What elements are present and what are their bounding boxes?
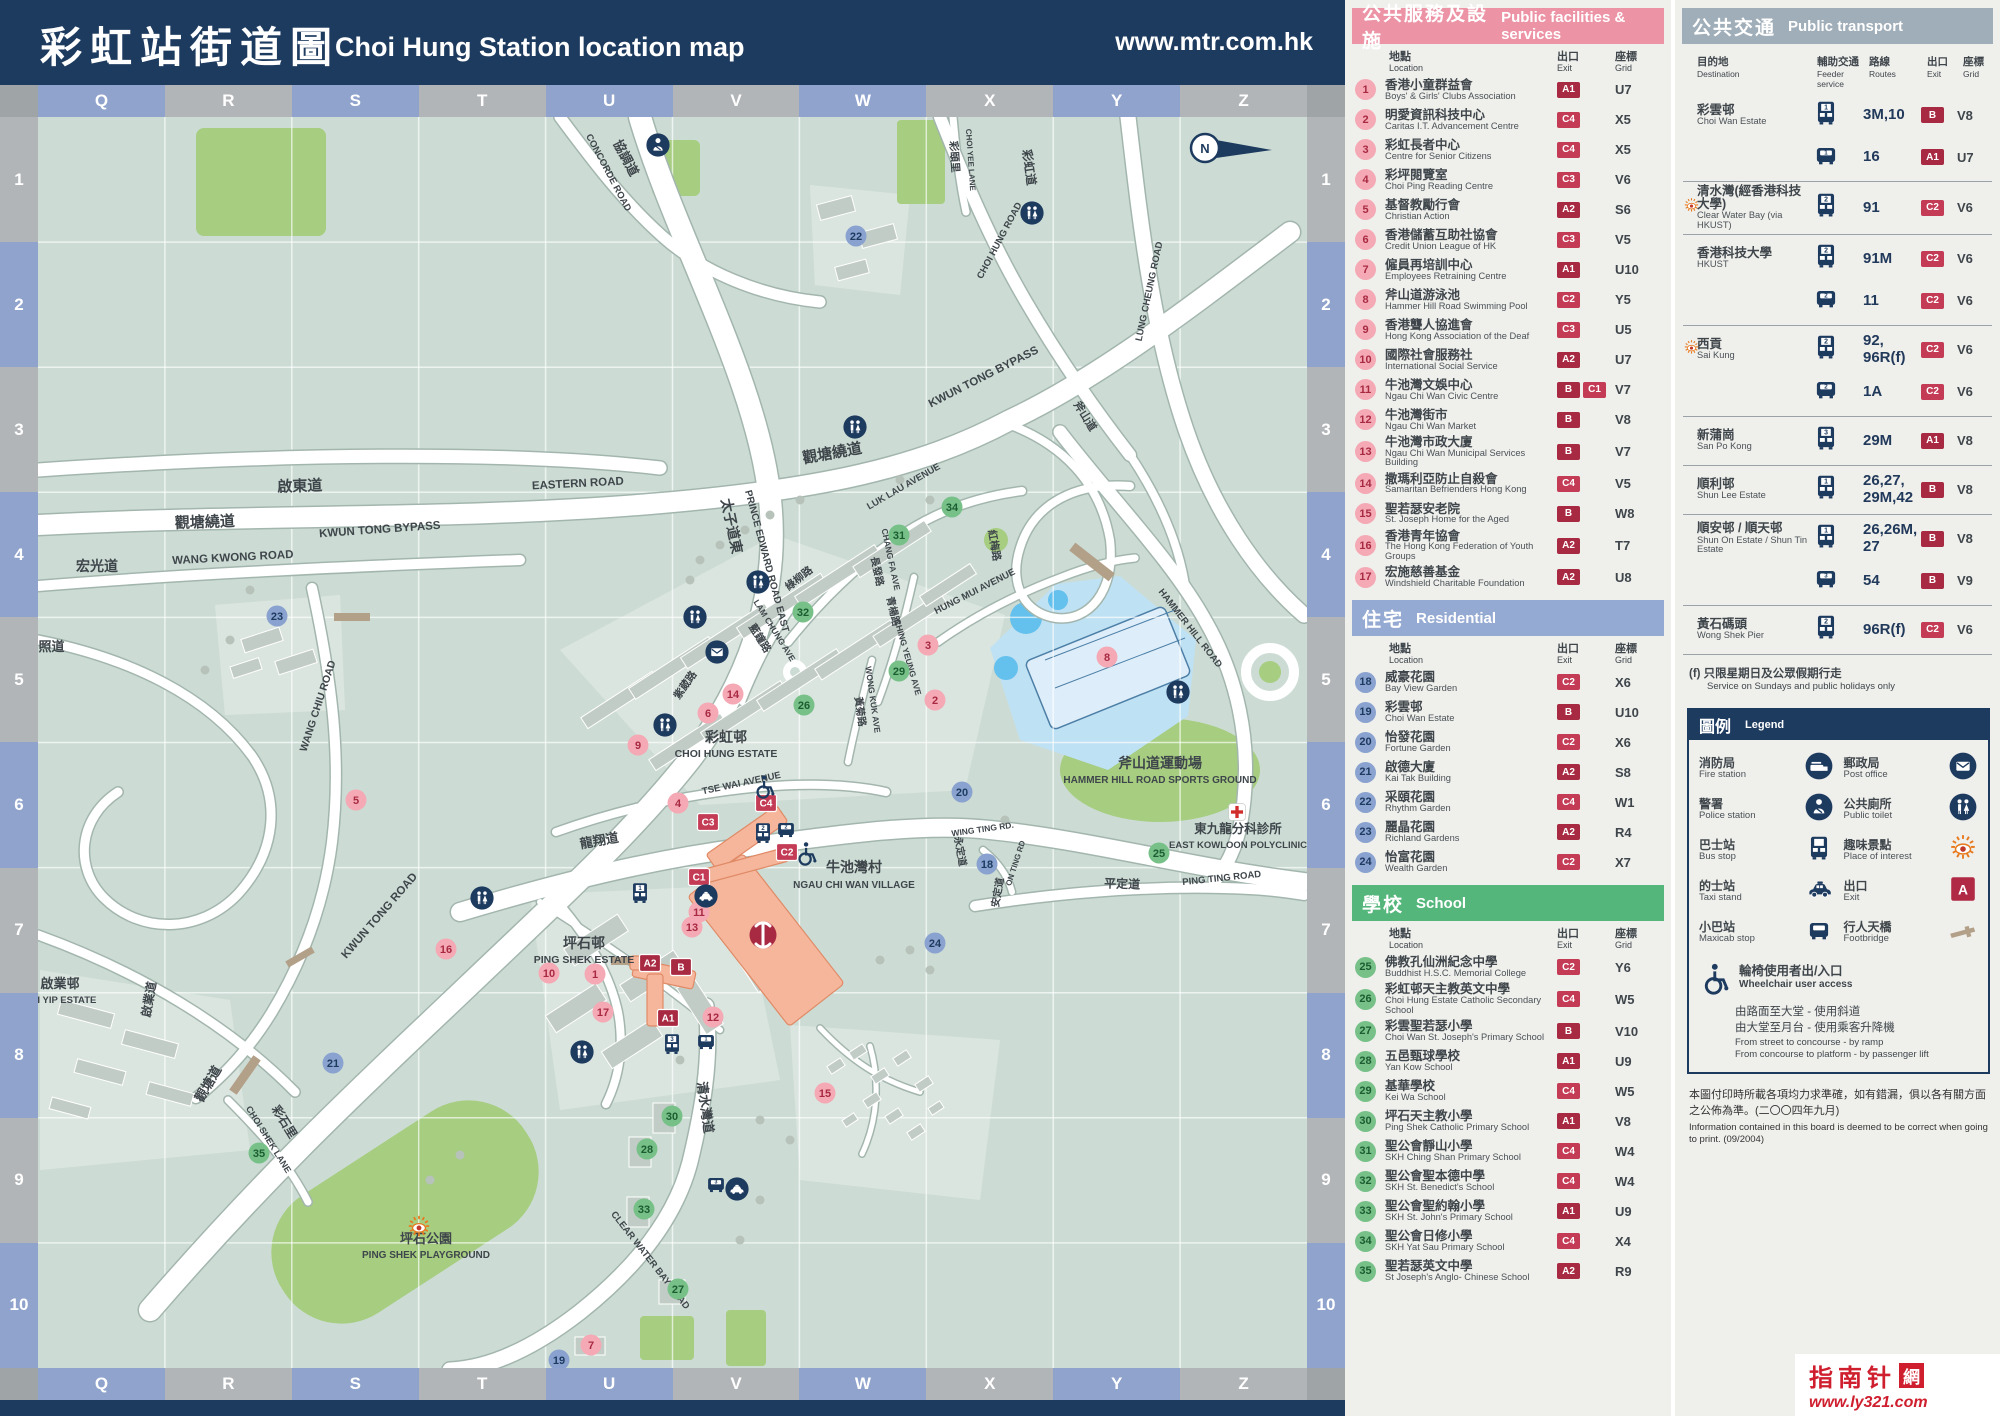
exit-badge: C3 xyxy=(1557,232,1580,248)
page-title-cn: 彩虹站街道圖 xyxy=(40,14,340,75)
map-marker-35: 35 xyxy=(249,1143,270,1164)
grid-number: 5 xyxy=(1307,617,1345,742)
grid-number: 4 xyxy=(0,492,38,617)
item-name-cn: 彩雲聖若瑟小學 xyxy=(1385,1020,1553,1033)
item-name-en: Fortune Garden xyxy=(1385,744,1553,753)
map-marker-22: 22 xyxy=(846,226,867,247)
item-grid-ref: W5 xyxy=(1615,1084,1661,1099)
grid-letter: U xyxy=(546,85,673,117)
exit-badge: A2 xyxy=(1557,824,1580,840)
frame-corner xyxy=(0,1368,38,1400)
map-exit-A2: A2 xyxy=(640,955,661,972)
public-toilet-icon xyxy=(1948,792,1978,822)
header-bar: 彩虹站街道圖 Choi Hung Station location map ww… xyxy=(0,0,1345,85)
exit-badge: C4 xyxy=(1557,476,1580,492)
svg-text:2: 2 xyxy=(1824,619,1828,626)
svg-text:14: 14 xyxy=(727,689,740,701)
tree xyxy=(686,576,695,585)
grid-ref: V6 xyxy=(1957,622,1997,637)
item-name-en: Boys' & Girls' Clubs Association xyxy=(1385,92,1553,101)
exit-badge: C2 xyxy=(1557,854,1580,870)
list-item: 15 聖若瑟安老院St. Joseph Home for the Aged B … xyxy=(1345,499,1671,529)
grid-ref: V6 xyxy=(1957,200,1997,215)
logo-seal: 網 xyxy=(1899,1363,1924,1388)
grid-ref: V6 xyxy=(1957,342,1997,357)
item-name-en: SKH St. Benedict's School xyxy=(1385,1183,1553,1192)
item-number: 3 xyxy=(1355,139,1376,160)
exit-badge: C2 xyxy=(1921,622,1944,638)
grid-letter: Z xyxy=(1180,1368,1307,1400)
grid-letter: S xyxy=(292,85,419,117)
grid-ref: V8 xyxy=(1957,531,1997,546)
exit-badge: B xyxy=(1557,1023,1580,1039)
svg-text:18: 18 xyxy=(981,859,993,871)
bus-stop-icon: 1 xyxy=(1811,98,1841,128)
fire-station-icon xyxy=(1804,751,1834,781)
legend-item: 趣味景點Place of interest xyxy=(1844,830,1979,871)
exit-badge: C2 xyxy=(1921,251,1944,267)
frame-corner xyxy=(1307,1368,1345,1400)
exit-badge: B xyxy=(1557,444,1580,460)
item-number: 6 xyxy=(1355,229,1376,250)
item-grid-ref: V7 xyxy=(1615,444,1661,459)
map-label-poly_en: EAST KOWLOON POLYCLINIC xyxy=(1169,840,1307,851)
public-toilet-icon xyxy=(1165,679,1191,705)
map-marker-1: 1 xyxy=(585,964,606,985)
grid-letters-bottom: QRSTUVWXYZ xyxy=(38,1368,1307,1400)
map-marker-6: 6 xyxy=(698,703,719,724)
svg-text:5: 5 xyxy=(353,795,359,807)
map-label-ktb_cn: 觀塘繞道 xyxy=(175,512,236,532)
map-label-che_cn: 彩虹邨 xyxy=(704,729,747,745)
map-marker-20: 20 xyxy=(952,782,973,803)
item-name-en: Choi Hung Estate Catholic Secondary Scho… xyxy=(1385,996,1553,1015)
svg-text:3: 3 xyxy=(1824,430,1828,437)
map-frame: QRSTUVWXYZ QRSTUVWXYZ 12345678910 123456… xyxy=(0,85,1345,1416)
grid-letter: V xyxy=(673,1368,800,1400)
grid-letter: R xyxy=(165,85,292,117)
map-marker-30: 30 xyxy=(662,1106,683,1127)
map-label-wang_kwong_cn: 宏光道 xyxy=(76,558,118,574)
item-name-cn: 香港儲蓄互助社協會 xyxy=(1385,229,1553,242)
list-item: 3 彩虹長者中心Centre for Senior Citizens C4 X5 xyxy=(1345,135,1671,165)
item-number: 21 xyxy=(1355,762,1376,783)
tree xyxy=(906,946,915,955)
list-item: 11 牛池灣文娛中心Ngau Chi Wan Civic Centre BC1 … xyxy=(1345,375,1671,405)
grid-ref: V8 xyxy=(1957,108,1997,123)
item-number: 33 xyxy=(1355,1201,1376,1222)
item-name-en: SKH Ching Shan Primary School xyxy=(1385,1153,1553,1162)
item-name-cn: 彩坪閱覽室 xyxy=(1385,169,1553,182)
item-grid-ref: X5 xyxy=(1615,112,1661,127)
legend-box: 圖例 Legend 消防局Fire station 郵政局Post office… xyxy=(1687,708,1990,1074)
feeder-icon: 3 xyxy=(1811,563,1863,598)
legend-item: 消防局Fire station xyxy=(1699,748,1834,789)
svg-text:1: 1 xyxy=(1824,528,1828,535)
item-grid-ref: W1 xyxy=(1615,795,1661,810)
exit-badge: C4 xyxy=(1557,1173,1580,1189)
item-grid-ref: W4 xyxy=(1615,1144,1661,1159)
svg-text:31: 31 xyxy=(893,530,905,542)
bus-stop-icon: 1 xyxy=(1811,472,1841,502)
public-toilet-icon xyxy=(745,569,771,595)
routes: 91M xyxy=(1863,251,1921,268)
map-marker-26: 26 xyxy=(794,695,815,716)
feeder-icon: 2 xyxy=(1811,241,1863,276)
taxi-icon xyxy=(724,1176,750,1202)
facilities-column: 公共服務及設施 Public facilities & services 地點L… xyxy=(1345,0,1671,1416)
transport-row: 西貢Sai Kung 2 92, 96R(f) C2 V6 xyxy=(1683,329,1992,371)
item-number: 34 xyxy=(1355,1231,1376,1252)
routes: 91 xyxy=(1863,200,1921,217)
transport-group: 清水灣(經香港科技大學)Clear Water Bay (via HKUST) … xyxy=(1683,182,1992,235)
item-name-en: Ping Shek Catholic Primary School xyxy=(1385,1123,1553,1132)
svg-text:1: 1 xyxy=(592,969,598,981)
legend-items: 消防局Fire station 郵政局Post office 警署Police … xyxy=(1689,740,1988,955)
list-item: 35 聖若瑟英文中學St Joseph's Anglo- Chinese Sch… xyxy=(1345,1256,1671,1286)
list-item: 9 香港聾人協進會Hong Kong Association of the De… xyxy=(1345,315,1671,345)
item-name-en: Choi Wan St. Joseph's Primary School xyxy=(1385,1033,1553,1042)
map-marker-24: 24 xyxy=(925,933,946,954)
item-number: 1 xyxy=(1355,79,1376,100)
exit-badge: A2 xyxy=(1557,569,1580,585)
item-number: 12 xyxy=(1355,409,1376,430)
exit-badge: A1 xyxy=(1557,262,1580,278)
exit-badge: A1 xyxy=(1557,82,1580,98)
transport-title-en: Public transport xyxy=(1788,18,1903,35)
list-item: 26 彩虹邨天主教英文中學Choi Hung Estate Catholic S… xyxy=(1345,982,1671,1016)
feeder-icon: 1 xyxy=(1811,98,1863,133)
item-grid-ref: V8 xyxy=(1615,412,1661,427)
frame-corner xyxy=(0,85,38,117)
map-label-sports_cn: 斧山道運動場 xyxy=(1118,755,1202,771)
transport-row: 新蒲崗San Po Kong 3 29M A1 V8 xyxy=(1683,420,1992,462)
transport-group: 彩雲邨Choi Wan Estate 1 3M,10 B V8 1 16 A1 … xyxy=(1683,91,1992,182)
grid-number: 1 xyxy=(1307,117,1345,242)
svg-text:1: 1 xyxy=(705,1037,708,1043)
grid-number: 9 xyxy=(1307,1118,1345,1243)
exit-badge: C4 xyxy=(1557,991,1580,1007)
svg-text:17: 17 xyxy=(597,1007,609,1019)
item-number: 4 xyxy=(1355,169,1376,190)
grid-letter: S xyxy=(292,1368,419,1400)
bus-stop-icon: 3 xyxy=(659,1031,685,1057)
map-marker-8: 8 xyxy=(1097,647,1118,668)
grid-letter: Q xyxy=(38,85,165,117)
public-toilet-icon xyxy=(682,604,708,630)
map-marker-10: 10 xyxy=(539,963,560,984)
item-name-cn: 聖公會聖約翰小學 xyxy=(1385,1200,1553,1213)
destination-en: HKUST xyxy=(1697,260,1811,270)
svg-text:N: N xyxy=(1200,141,1209,156)
exit-badge: A2 xyxy=(1557,1263,1580,1279)
maxicab-stop-icon: 3 xyxy=(1811,563,1841,593)
residential-title-cn: 住宅 xyxy=(1362,605,1404,632)
destination-en: Sai Kung xyxy=(1697,351,1811,361)
legend-item: 小巴站Maxicab stop xyxy=(1699,912,1834,953)
transport-group: 黃石碼頭Wong Shek Pier 2 96R(f) C2 V6 xyxy=(1683,606,1992,655)
logo-text: 指南针 xyxy=(1809,1358,1896,1393)
item-number: 11 xyxy=(1355,379,1376,400)
map-marker-17: 17 xyxy=(593,1002,614,1023)
svg-text:27: 27 xyxy=(672,1284,684,1296)
list-item: 30 坪石天主教小學Ping Shek Catholic Primary Sch… xyxy=(1345,1106,1671,1136)
residential-list: 18 威豪花園Bay View Garden C2 X6 19 彩雲邨Choi … xyxy=(1345,667,1671,877)
map-marker-34: 34 xyxy=(942,497,963,518)
cross-icon xyxy=(1224,799,1250,825)
wheelchair-notes: 由路面至大堂 - 使用斜道 由大堂至月台 - 使用乘客升降機 From stre… xyxy=(1689,1002,1988,1072)
station-map-board: 彩虹站街道圖 Choi Hung Station location map ww… xyxy=(0,0,2000,1416)
grid-letter: T xyxy=(419,1368,546,1400)
school-title-cn: 學校 xyxy=(1362,890,1404,917)
exit-badge: B xyxy=(1921,107,1944,123)
tree xyxy=(246,586,255,595)
public-toilet-icon xyxy=(469,885,495,911)
map-marker-28: 28 xyxy=(637,1139,658,1160)
item-name-en: International Social Service xyxy=(1385,362,1553,371)
item-name-en: Employees Retraining Centre xyxy=(1385,272,1553,281)
item-name-en: Samaritan Befrienders Hong Kong xyxy=(1385,485,1553,494)
item-grid-ref: U9 xyxy=(1615,1204,1661,1219)
svg-text:2: 2 xyxy=(1824,248,1828,255)
map-marker-25: 25 xyxy=(1149,843,1170,864)
grid-number: 1 xyxy=(0,117,38,242)
map-marker-15: 15 xyxy=(815,1083,836,1104)
grid-number: 8 xyxy=(0,993,38,1118)
tree xyxy=(736,1236,745,1245)
item-grid-ref: V5 xyxy=(1615,476,1661,491)
svg-text:1: 1 xyxy=(1824,149,1828,156)
list-item: 21 啟德大廈Kai Tak Building A2 S8 xyxy=(1345,757,1671,787)
transport-row: 順安邨 / 順天邨Shun On Estate / Shun Tin Estat… xyxy=(1683,518,1992,560)
bus-stop-icon: 1 xyxy=(1811,521,1841,551)
item-name-cn: 聖公會靜山小學 xyxy=(1385,1140,1553,1153)
residential-panel-header: 住宅 Residential xyxy=(1352,600,1664,636)
map-marker-9: 9 xyxy=(628,735,649,756)
exit-badge: B xyxy=(1557,704,1580,720)
item-number: 9 xyxy=(1355,319,1376,340)
maxicab-stop-icon: 2 xyxy=(1811,283,1841,313)
mtr-logo xyxy=(750,922,777,949)
grid-letter: Y xyxy=(1053,1368,1180,1400)
exit-badge: B xyxy=(1557,506,1580,522)
svg-text:10: 10 xyxy=(543,968,555,980)
item-name-en: Ngau Chi Wan Municipal Services Building xyxy=(1385,449,1553,468)
destination-en: Choi Wan Estate xyxy=(1697,117,1811,127)
svg-text:26: 26 xyxy=(798,700,810,712)
exit-badge: C4 xyxy=(1557,142,1580,158)
exit-badge: C2 xyxy=(1921,342,1944,358)
svg-text:8: 8 xyxy=(1104,652,1110,664)
svg-text:32: 32 xyxy=(797,607,809,619)
facilities-panel-header: 公共服務及設施 Public facilities & services xyxy=(1352,8,1664,44)
tree xyxy=(696,556,705,565)
svg-text:16: 16 xyxy=(440,944,452,956)
transport-column: 公共交通 Public transport 目的地Destination 輔助交… xyxy=(1671,0,2000,1416)
interest-flag xyxy=(1683,197,1697,219)
svg-text:2: 2 xyxy=(1824,293,1828,300)
svg-text:23: 23 xyxy=(271,611,283,623)
item-name-en: Hammer Hill Road Swimming Pool xyxy=(1385,302,1553,311)
grid-numbers-right: 12345678910 xyxy=(1307,117,1345,1368)
list-item: 23 麗晶花園Richland Gardens A2 R4 xyxy=(1345,817,1671,847)
item-grid-ref: W4 xyxy=(1615,1174,1661,1189)
item-name-en: Yan Kow School xyxy=(1385,1063,1553,1072)
list-item: 14 撒瑪利亞防止自殺會Samaritan Befrienders Hong K… xyxy=(1345,469,1671,499)
public-toilet-icon xyxy=(652,712,678,738)
map-label-ncw_cn: 牛池灣村 xyxy=(826,859,882,875)
map-marker-3: 3 xyxy=(918,635,939,656)
map-label-kai_yip_cn: 啟業邨 xyxy=(40,976,79,991)
map-marker-23: 23 xyxy=(267,606,288,627)
destination-en: Wong Shek Pier xyxy=(1697,631,1811,641)
item-name-cn: 斧山道游泳池 xyxy=(1385,289,1553,302)
list-item: 34 聖公會日修小學SKH Yat Sau Primary School C4 … xyxy=(1345,1226,1671,1256)
item-name-cn: 基華學校 xyxy=(1385,1080,1553,1093)
item-name-en: St. Joseph Home for the Aged xyxy=(1385,515,1553,524)
grid-letters-top: QRSTUVWXYZ xyxy=(38,85,1307,117)
svg-text:24: 24 xyxy=(929,938,942,950)
list-item: 13 牛池灣市政大廈Ngau Chi Wan Municipal Service… xyxy=(1345,435,1671,469)
svg-text:C3: C3 xyxy=(702,818,715,829)
list-item: 20 怡發花園Fortune Garden C2 X6 xyxy=(1345,727,1671,757)
map-marker-7: 7 xyxy=(581,1335,602,1356)
item-number: 23 xyxy=(1355,822,1376,843)
maxicab-stop-icon: 1 xyxy=(1811,140,1841,170)
police-station-icon xyxy=(1804,792,1834,822)
svg-text:2: 2 xyxy=(1824,339,1828,346)
grid-number: 2 xyxy=(1307,242,1345,367)
tree xyxy=(876,956,885,965)
item-number: 7 xyxy=(1355,259,1376,280)
svg-text:C2: C2 xyxy=(781,848,794,859)
exit-badge: B xyxy=(1557,382,1580,398)
school-title-en: School xyxy=(1416,895,1466,912)
grid-letter: X xyxy=(926,1368,1053,1400)
item-number: 19 xyxy=(1355,702,1376,723)
maxicab-stop-icon: 2 xyxy=(773,816,799,842)
residential-column-heads: 地點Location 出口Exit 座標Grid xyxy=(1345,640,1671,667)
grid-ref: V8 xyxy=(1957,482,1997,497)
grid-ref: U7 xyxy=(1957,150,1997,165)
item-grid-ref: T7 xyxy=(1615,538,1661,553)
school-column-heads: 地點Location 出口Exit 座標Grid xyxy=(1345,925,1671,952)
item-number: 2 xyxy=(1355,109,1376,130)
feeder-icon: 1 xyxy=(1811,521,1863,556)
grid-letter: W xyxy=(799,1368,926,1400)
item-name-en: Buddhist H.S.C. Memorial College xyxy=(1385,969,1553,978)
item-name-en: Richland Gardens xyxy=(1385,834,1553,843)
item-name-cn: 五邑甄球學校 xyxy=(1385,1050,1553,1063)
map-label-che_en: CHOI HUNG ESTATE xyxy=(675,748,778,760)
item-number: 32 xyxy=(1355,1171,1376,1192)
list-item: 22 采頤花園Rhythm Garden C4 W1 xyxy=(1345,787,1671,817)
item-name-en: Wealth Garden xyxy=(1385,864,1553,873)
routes: 26,26M, 27 xyxy=(1863,522,1921,555)
grid-number: 4 xyxy=(1307,492,1345,617)
item-grid-ref: X7 xyxy=(1615,855,1661,870)
item-name-en: Christian Action xyxy=(1385,212,1553,221)
transport-row: 彩雲邨Choi Wan Estate 1 3M,10 B V8 xyxy=(1683,94,1992,136)
item-number: 15 xyxy=(1355,503,1376,524)
item-name-en: Rhythm Garden xyxy=(1385,804,1553,813)
map-label-wang_chiu_cn: 宏照道 xyxy=(38,639,65,654)
footbridge-icon xyxy=(1948,915,1978,945)
grid-number: 6 xyxy=(1307,742,1345,867)
tree xyxy=(226,636,235,645)
item-name-cn: 國際社會服務社 xyxy=(1385,349,1553,362)
place-of-interest-icon xyxy=(1948,833,1978,863)
item-name-en: Caritas I.T. Advancement Centre xyxy=(1385,122,1553,131)
item-name-en: Choi Wan Estate xyxy=(1385,714,1553,723)
exit-badge: C1 xyxy=(1583,382,1606,398)
grid-number: 9 xyxy=(0,1118,38,1243)
maxicab-stop-icon xyxy=(1804,915,1834,945)
grid-letter: X xyxy=(926,85,1053,117)
page-title-en: Choi Hung Station location map xyxy=(335,32,744,63)
map-marker-13: 13 xyxy=(682,917,703,938)
exit-badge: C3 xyxy=(1557,172,1580,188)
transport-row: 香港科技大學HKUST 2 91M C2 V6 xyxy=(1683,238,1992,280)
grid-ref: V8 xyxy=(1957,433,1997,448)
exit-badge: C2 xyxy=(1921,384,1944,400)
transport-group: 香港科技大學HKUST 2 91M C2 V6 2 11 C2 V6 xyxy=(1683,235,1992,326)
routes: 1A xyxy=(1863,384,1921,401)
street-map: 協調道CONCORDE ROAD太子道東PRINCE EDWARD ROAD E… xyxy=(38,117,1307,1368)
routes: 54 xyxy=(1863,573,1921,590)
feeder-icon: 2 xyxy=(1811,332,1863,367)
grid-ref: V6 xyxy=(1957,251,1997,266)
exit-badge: C4 xyxy=(1557,1143,1580,1159)
legend-item: 巴士站Bus stop xyxy=(1699,830,1834,871)
exit-badge: C2 xyxy=(1557,292,1580,308)
bus-stop-icon: 2 xyxy=(1811,241,1841,271)
exit-badge: A1 xyxy=(1557,1203,1580,1219)
item-number: 20 xyxy=(1355,732,1376,753)
exit-badge: C4 xyxy=(1557,1233,1580,1249)
item-number: 27 xyxy=(1355,1021,1376,1042)
wheelchair-cn: 輪椅使用者出/入口 xyxy=(1739,965,1852,979)
map-marker-12: 12 xyxy=(703,1007,724,1028)
feeder-icon: 2 xyxy=(1811,283,1863,318)
tree xyxy=(756,1116,765,1125)
map-exit-B: B xyxy=(671,959,692,976)
print-note-en: Information contained in this board is d… xyxy=(1689,1122,1988,1147)
svg-text:25: 25 xyxy=(1153,848,1165,860)
grid-letter: W xyxy=(799,85,926,117)
map-label-ncw_en: NGAU CHI WAN VILLAGE xyxy=(793,880,915,891)
item-grid-ref: R4 xyxy=(1615,825,1661,840)
list-item: 12 牛池灣街市Ngau Chi Wan Market B V8 xyxy=(1345,405,1671,435)
exit-icon: A xyxy=(1948,874,1978,904)
list-item: 1 香港小童群益會Boys' & Girls' Clubs Associatio… xyxy=(1345,75,1671,105)
map-marker-33: 33 xyxy=(634,1199,655,1220)
transport-row: 3 54 B V9 xyxy=(1683,560,1992,602)
grid-ref: V6 xyxy=(1957,293,1997,308)
print-note-cn: 本圖付印時所載各項均力求準確，如有錯漏，俱以各有關方面之公佈為準。(二〇〇四年九… xyxy=(1689,1088,1988,1120)
svg-text:2: 2 xyxy=(932,695,938,707)
routes: 96R(f) xyxy=(1863,622,1921,639)
grid-number: 3 xyxy=(1307,367,1345,492)
bus-stop-icon xyxy=(1804,833,1834,863)
facilities-list: 1 香港小童群益會Boys' & Girls' Clubs Associatio… xyxy=(1345,75,1671,592)
svg-text:15: 15 xyxy=(819,1088,831,1100)
list-item: 5 基督教勵行會Christian Action A2 S6 xyxy=(1345,195,1671,225)
legend-item: 警署Police station xyxy=(1699,789,1834,830)
item-number: 29 xyxy=(1355,1081,1376,1102)
destination-en: San Po Kong xyxy=(1697,442,1811,452)
school-list: 25 佛教孔仙洲紀念中學Buddhist H.S.C. Memorial Col… xyxy=(1345,952,1671,1286)
